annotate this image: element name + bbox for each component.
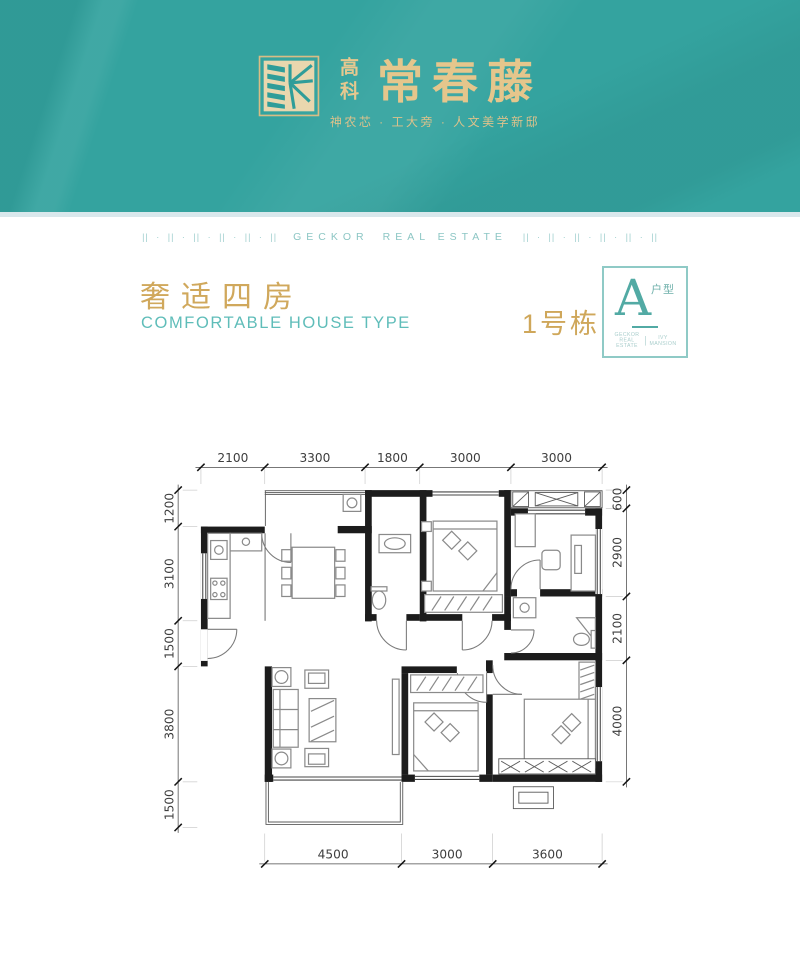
badge-foot-right: IVY MANSION [649, 335, 678, 346]
dims-bottom: 4500 3000 3600 [259, 834, 607, 868]
logo-cn-big: 常春藤 [377, 52, 542, 112]
dim-left-3: 1500 [163, 628, 177, 659]
dim-top-5: 3000 [541, 451, 572, 465]
unit-type-badge: A 户型 GECKOR REAL ESTATE IVY MANSION [602, 266, 688, 358]
brand-emblem-icon [258, 55, 320, 117]
dims-top: 2100 3300 1800 3000 3000 [195, 451, 607, 484]
divider-ticks-left: || · || · || · || · || · || [142, 232, 277, 242]
building-number: 1号栋 [522, 302, 600, 341]
floorplan-svg: 2100 3300 1800 3000 3000 1200 3100 1500 … [128, 438, 672, 913]
unit-type-letter-row: A 户型 [604, 272, 686, 324]
poster-page: 高科 常春藤 神农芯 · 工大旁 · 人文美学新邸 || · || · || ·… [0, 0, 800, 980]
dims-left: 1200 3100 1500 3800 1500 [163, 485, 198, 833]
hero-banner: 高科 常春藤 神农芯 · 工大旁 · 人文美学新邸 [0, 0, 800, 217]
divider-brand-1: GECKOR [293, 231, 369, 243]
divider-ticks-right: || · || · || · || · || · || [523, 232, 658, 242]
brand-tagline: 神农芯 · 工大旁 · 人文美学新邸 [0, 113, 800, 130]
dims-right: 600 2900 2100 4000 [606, 485, 630, 788]
dim-left-1: 1200 [163, 493, 177, 524]
balcony-layer [266, 782, 553, 825]
dim-bottom-1: 4500 [318, 847, 349, 861]
dim-left-2: 3100 [163, 558, 177, 589]
divider-brand-text: GECKORREAL ESTATE [293, 231, 507, 243]
dim-top-3: 1800 [377, 451, 408, 465]
dim-right-3: 2100 [611, 613, 625, 644]
badge-foot-separator [645, 336, 646, 346]
logo-block: 高科 常春藤 [0, 52, 800, 117]
badge-footnote: GECKOR REAL ESTATE IVY MANSION [612, 332, 678, 349]
unit-letter: A [615, 272, 651, 324]
page-subtitle: COMFORTABLE HOUSE TYPE [141, 314, 411, 333]
floorplan-figure: 2100 3300 1800 3000 3000 1200 3100 1500 … [128, 438, 672, 913]
dim-top-1: 2100 [217, 451, 248, 465]
page-title: 奢适四房 [140, 272, 304, 316]
unit-type-label: 户型 [651, 281, 675, 297]
dim-bottom-2: 3000 [432, 847, 463, 861]
divider-brand-2: REAL ESTATE [383, 231, 507, 243]
dim-right-2: 2900 [611, 537, 625, 568]
dim-left-5: 1500 [163, 789, 177, 820]
dim-top-4: 3000 [450, 451, 481, 465]
dim-left-4: 3800 [163, 709, 177, 740]
logo-cn-small: 高科 [335, 57, 362, 113]
dim-right-4: 4000 [611, 706, 625, 737]
dim-right-1: 600 [611, 488, 625, 511]
plan-drawing [201, 490, 602, 824]
brand-divider: || · || · || · || · || · || GECKORREAL E… [0, 231, 800, 243]
dim-top-2: 3300 [299, 451, 330, 465]
badge-foot-left: GECKOR REAL ESTATE [613, 332, 642, 349]
dim-bottom-3: 3600 [532, 847, 563, 861]
